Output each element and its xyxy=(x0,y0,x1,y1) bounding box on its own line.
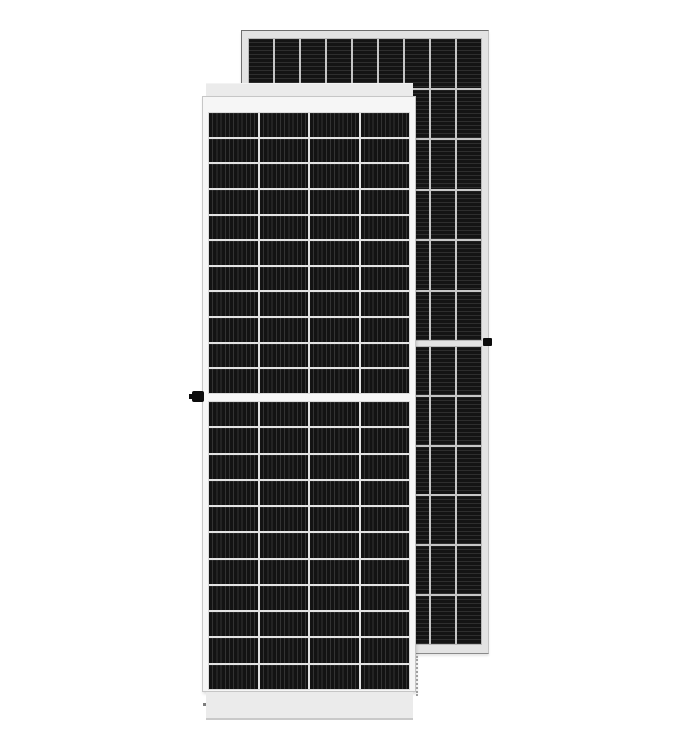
solar-cell xyxy=(361,586,410,610)
solar-cell xyxy=(431,546,455,594)
solar-cell xyxy=(209,455,258,479)
solar-cell xyxy=(310,507,359,531)
solar-cell xyxy=(260,292,309,316)
solar-cell xyxy=(260,190,309,214)
solar-cell xyxy=(361,665,410,689)
mounting-clip xyxy=(192,391,204,402)
solar-cell xyxy=(310,586,359,610)
solar-cell xyxy=(310,481,359,505)
solar-cell xyxy=(361,164,410,188)
solar-cell xyxy=(310,665,359,689)
solar-cell xyxy=(457,90,481,139)
solar-cell xyxy=(361,481,410,505)
solar-cell xyxy=(361,344,410,368)
solar-cell xyxy=(260,533,309,557)
solar-cell xyxy=(310,638,359,662)
solar-cell xyxy=(361,560,410,584)
front-panel-bottom-half-grid xyxy=(208,401,410,690)
solar-cell xyxy=(457,397,481,445)
solar-cell xyxy=(457,347,481,395)
solar-cell xyxy=(431,39,455,88)
solar-cell xyxy=(327,39,351,88)
solar-cell xyxy=(310,164,359,188)
solar-cell xyxy=(301,39,325,88)
solar-cell xyxy=(260,344,309,368)
front-panel-bottom-frame-cap xyxy=(206,692,413,720)
solar-cell xyxy=(353,39,377,88)
solar-cell xyxy=(260,481,309,505)
solar-cell xyxy=(361,292,410,316)
solar-cell xyxy=(431,292,455,341)
solar-cell xyxy=(209,113,258,137)
solar-cell xyxy=(260,139,309,163)
solar-cell xyxy=(209,402,258,426)
solar-cell xyxy=(457,241,481,290)
solar-cell xyxy=(310,190,359,214)
solar-cell xyxy=(310,318,359,342)
solar-cell xyxy=(361,190,410,214)
solar-cell xyxy=(361,318,410,342)
solar-cell xyxy=(431,496,455,544)
solar-cell xyxy=(431,397,455,445)
solar-cell xyxy=(431,241,455,290)
solar-cell xyxy=(310,369,359,393)
solar-cell xyxy=(209,139,258,163)
solar-cell xyxy=(361,455,410,479)
product-photo-scene xyxy=(0,0,684,748)
solar-cell xyxy=(260,318,309,342)
solar-cell xyxy=(361,267,410,291)
solar-cell xyxy=(260,507,309,531)
solar-cell xyxy=(260,267,309,291)
solar-cell xyxy=(209,533,258,557)
solar-cell xyxy=(310,292,359,316)
solar-cell xyxy=(260,665,309,689)
solar-cell xyxy=(310,241,359,265)
solar-cell xyxy=(209,586,258,610)
solar-cell xyxy=(361,241,410,265)
solar-cell xyxy=(209,507,258,531)
solar-cell xyxy=(209,164,258,188)
solar-cell xyxy=(260,164,309,188)
solar-cell xyxy=(260,369,309,393)
solar-cell xyxy=(361,507,410,531)
solar-cell xyxy=(209,665,258,689)
solar-cell xyxy=(260,241,309,265)
solar-cell xyxy=(457,191,481,240)
solar-cell xyxy=(310,533,359,557)
solar-cell xyxy=(431,347,455,395)
solar-cell xyxy=(209,612,258,636)
solar-cell xyxy=(361,402,410,426)
solar-cell xyxy=(310,216,359,240)
solar-cell xyxy=(209,267,258,291)
solar-cell xyxy=(260,216,309,240)
solar-cell xyxy=(361,638,410,662)
solar-cell xyxy=(361,139,410,163)
solar-cell xyxy=(310,267,359,291)
solar-cell xyxy=(260,560,309,584)
solar-cell xyxy=(310,113,359,137)
solar-cell xyxy=(361,216,410,240)
solar-cell xyxy=(431,596,455,644)
solar-cell xyxy=(209,190,258,214)
solar-cell xyxy=(361,533,410,557)
solar-cell xyxy=(361,612,410,636)
solar-cell xyxy=(209,560,258,584)
solar-cell xyxy=(209,481,258,505)
solar-cell xyxy=(431,191,455,240)
solar-cell xyxy=(361,113,410,137)
solar-cell xyxy=(457,140,481,189)
solar-cell xyxy=(310,402,359,426)
frame-edge-shadow xyxy=(416,656,418,696)
solar-cell xyxy=(310,428,359,452)
solar-cell xyxy=(249,39,273,88)
solar-cell xyxy=(209,369,258,393)
solar-cell xyxy=(260,455,309,479)
solar-cell xyxy=(310,612,359,636)
solar-cell xyxy=(209,241,258,265)
solar-cell xyxy=(260,113,309,137)
solar-cell xyxy=(431,140,455,189)
solar-cell xyxy=(405,39,429,88)
solar-cell xyxy=(379,39,403,88)
solar-cell xyxy=(431,90,455,139)
solar-cell xyxy=(209,318,258,342)
solar-cell xyxy=(275,39,299,88)
front-panel-body xyxy=(202,96,416,692)
solar-cell xyxy=(457,39,481,88)
solar-cell xyxy=(260,428,309,452)
solar-cell xyxy=(457,596,481,644)
solar-cell xyxy=(209,216,258,240)
mounting-clip xyxy=(483,338,492,346)
solar-cell xyxy=(310,560,359,584)
solar-cell xyxy=(310,455,359,479)
solar-cell xyxy=(260,638,309,662)
solar-cell xyxy=(310,344,359,368)
solar-cell xyxy=(457,292,481,341)
solar-cell xyxy=(260,586,309,610)
front-solar-panel xyxy=(202,83,416,718)
solar-cell xyxy=(431,447,455,495)
solar-cell xyxy=(457,546,481,594)
solar-cell xyxy=(209,292,258,316)
solar-cell xyxy=(457,496,481,544)
solar-cell xyxy=(209,344,258,368)
solar-cell xyxy=(260,402,309,426)
front-panel-center-gap xyxy=(208,394,410,401)
solar-cell xyxy=(361,428,410,452)
solar-cell xyxy=(457,447,481,495)
front-panel-cell-area xyxy=(208,112,410,690)
solar-cell xyxy=(209,638,258,662)
front-panel-top-half-grid xyxy=(208,112,410,394)
solar-cell xyxy=(361,369,410,393)
solar-cell xyxy=(209,428,258,452)
solar-cell xyxy=(260,612,309,636)
solar-cell xyxy=(310,139,359,163)
